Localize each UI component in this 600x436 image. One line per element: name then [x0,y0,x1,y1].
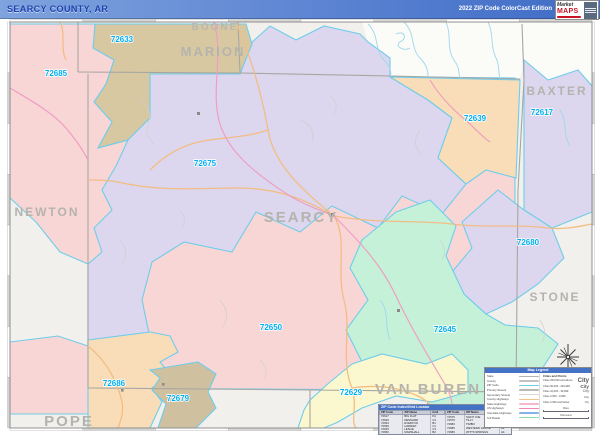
legend-cities: Cities and Points Cities 250,000 and abo… [539,374,589,420]
page-title: SEARCY COUNTY, AR [7,0,108,19]
zip-index-row: 72686WITTS SPRINGSA4 [446,430,511,434]
scalebar-km: Kilometers [543,414,589,419]
legend-city-sample: City [585,401,589,404]
region-northeast-white [362,22,592,84]
county-label-baxter: BAXTER [526,84,587,98]
county-label-searcy: SEARCY [264,209,339,226]
zip-index-cell: 72650 [380,431,403,434]
zip-index-cell: B2 [431,431,445,434]
legend-line-label: County [487,379,519,383]
zip-index-cell: WITTS SPRINGS [464,430,499,434]
zip-index-cell: 72686 [446,430,465,434]
legend-city-label: Cities 2,500 and below [543,401,585,404]
legend-line-label: ZIP Code [487,383,519,387]
zip-index-left: ZIP Code ZIP Name Grid 72617BIG FLATD172… [379,410,445,434]
legend-line-sample [519,417,539,418]
map-legend: Map Legend StateCountyZIP CodePrimary St… [484,367,592,428]
legend-city-label: Cities 10,000 - 49,999 [543,390,583,393]
county-label-pope: POPE [44,413,94,430]
legend-line-sample [519,380,539,381]
legend-line-sample [519,412,539,413]
legend-city-class: Cities 2,500 and belowCity [543,400,589,405]
legend-city-sample: City [584,395,589,399]
zip-label-72686: 72686 [103,379,126,388]
legend-line-label: Primary Streets [487,388,519,392]
logo-stamp [584,2,597,19]
legend-city-label: Cities 50,000 - 249,999 [543,385,580,388]
logo-brand-bottom: MAPS [557,8,584,15]
scalebar-miles: Miles [543,407,589,412]
zip-index-row: 72650MARSHALLB2 [380,431,445,434]
legend-city-sample: City [580,384,589,389]
zip-label-72685: 72685 [45,69,68,78]
zip-label-72629: 72629 [340,388,363,397]
county-label-marion: MARION [181,44,246,59]
marketmaps-logo: Market MAPS [555,0,599,20]
legend-line-sample [519,385,539,386]
legend-city-label: Cities 250,000 and above [543,379,578,382]
edition-label: 2022 ZIP Code ColorCast Edition [459,0,552,19]
legend-line-label: Secondary Streets [487,393,519,397]
zip-label-72680: 72680 [517,238,540,247]
legend-line-sample [519,376,539,377]
legend-line-label: Interstate Highways [487,411,519,415]
zip-label-72639: 72639 [464,114,487,123]
legend-line-sample [519,394,539,395]
legend-line-sample [519,403,539,404]
zip-label-72675: 72675 [194,159,217,168]
legend-line-sample [519,399,539,400]
zip-label-72650: 72650 [260,323,283,332]
county-label-newton: NEWTON [14,205,79,219]
legend-line-label: County Highways [487,397,519,401]
legend-city-sample: City [583,389,589,393]
legend-line-items: StateCountyZIP CodePrimary StreetsSecond… [487,374,539,420]
legend-city-label: Cities 2,500 - 9,999 [543,395,584,398]
county-label-van-buren: VAN BUREN [375,381,481,398]
legend-line-item: Toll Roads [487,415,539,420]
zip-index-cell: A4 [499,430,510,434]
map-page: BOONE MARION BAXTER NEWTON SEARCY STONE … [0,0,600,436]
legend-line-label: State [487,374,519,378]
county-label-stone: STONE [529,290,580,304]
legend-line-sample [519,408,539,409]
legend-line-label: US Highways [487,406,519,410]
legend-line-label: Toll Roads [487,416,519,420]
title-bar: SEARCY COUNTY, AR 2022 ZIP Code ColorCas… [0,0,600,19]
zip-label-72633: 72633 [111,35,134,44]
zip-region-72685-south [10,336,88,414]
zip-label-72617: 72617 [531,108,554,117]
legend-line-sample [519,389,539,390]
zip-label-72645: 72645 [434,325,457,334]
zip-label-72679: 72679 [167,394,190,403]
legend-line-label: State Highways [487,402,519,406]
logo-brand: Market MAPS [557,3,584,18]
logo-swoosh [557,16,581,18]
county-label-boone: BOONE [192,22,239,33]
zip-index-cell: MARSHALL [403,431,431,434]
